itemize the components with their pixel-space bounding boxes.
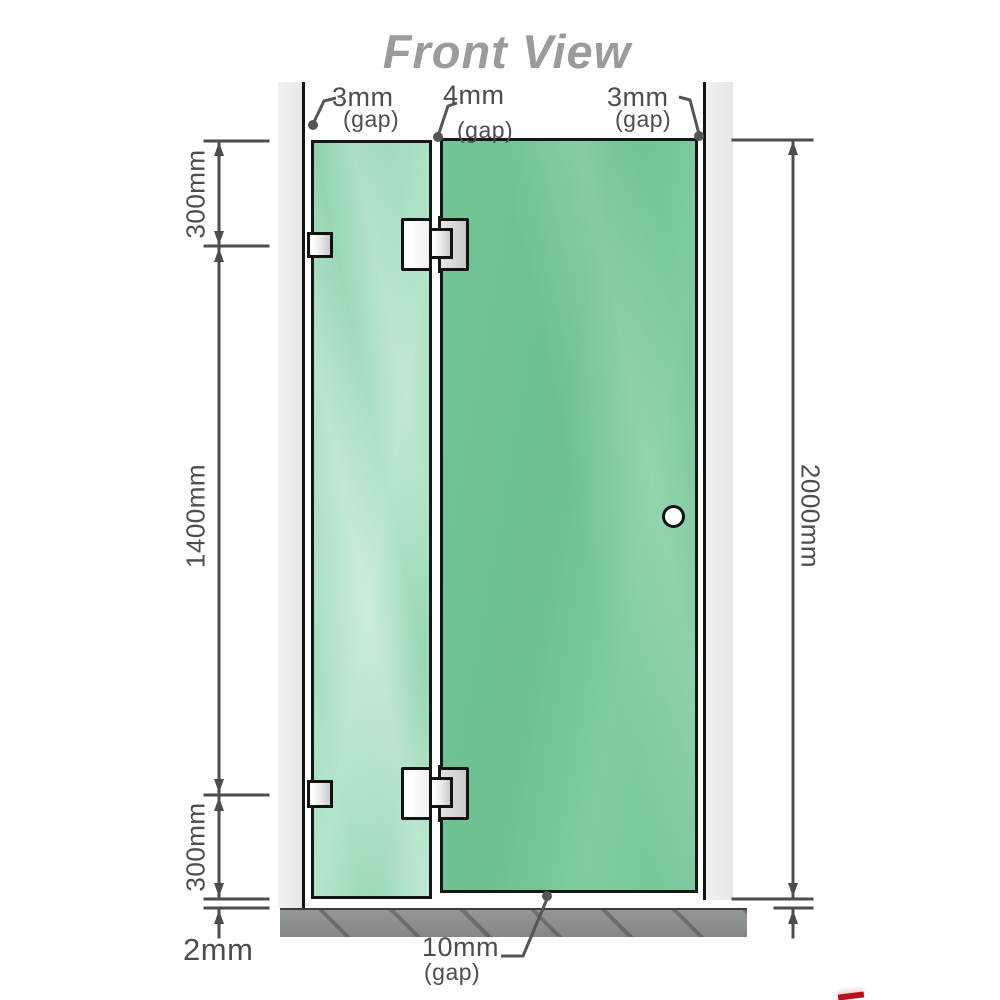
- wall-bracket-top: [307, 232, 333, 258]
- right-wall: [703, 82, 733, 900]
- hinge-top-knuckle: [429, 228, 453, 259]
- dim-label-2mm: 2mm: [183, 932, 253, 968]
- floor: [280, 908, 747, 937]
- glass-door-panel: [440, 138, 698, 893]
- gap-label-left-note: (gap): [343, 106, 399, 133]
- gap-label-middle-value: 4mm: [443, 80, 505, 111]
- gap-label-middle-note: (gap): [457, 117, 513, 144]
- dim-label-300mm-top: 300mm: [181, 149, 212, 238]
- door-handle-knob: [662, 505, 685, 528]
- dim-label-300mm-bottom: 300mm: [181, 802, 212, 891]
- diagram-title: Front View: [383, 24, 632, 79]
- corner-logo-fragment: [838, 991, 865, 1000]
- gap-label-right-note: (gap): [615, 106, 671, 133]
- hinge-bottom-knuckle: [429, 777, 453, 808]
- gap-label-bottom-note: (gap): [424, 959, 480, 986]
- front-view-diagram: Front View: [0, 0, 1000, 1000]
- dim-label-1400mm: 1400mm: [181, 464, 212, 568]
- wall-bracket-bottom: [307, 780, 333, 808]
- dim-label-2000mm: 2000mm: [795, 464, 826, 568]
- left-wall: [278, 82, 305, 908]
